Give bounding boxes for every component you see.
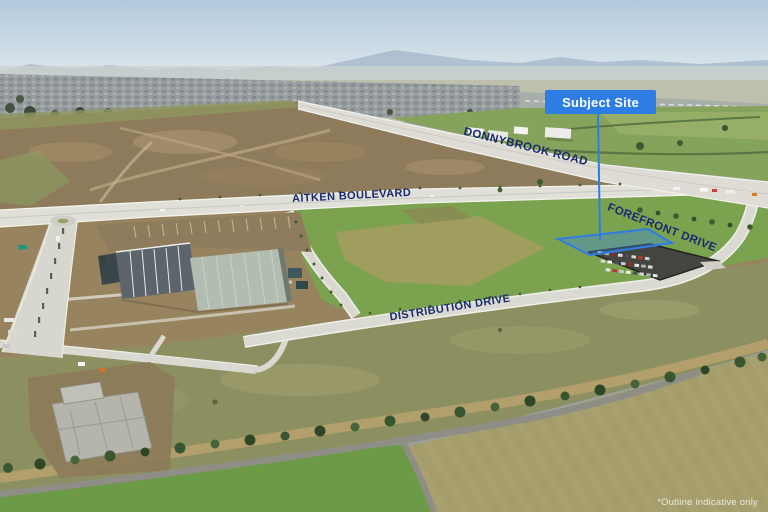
aerial-photo-scene: [0, 0, 768, 512]
construction-pads: [28, 362, 175, 478]
aerial-site-photo: Subject Site DONNYBROOK ROAD AITKEN BOUL…: [0, 0, 768, 512]
